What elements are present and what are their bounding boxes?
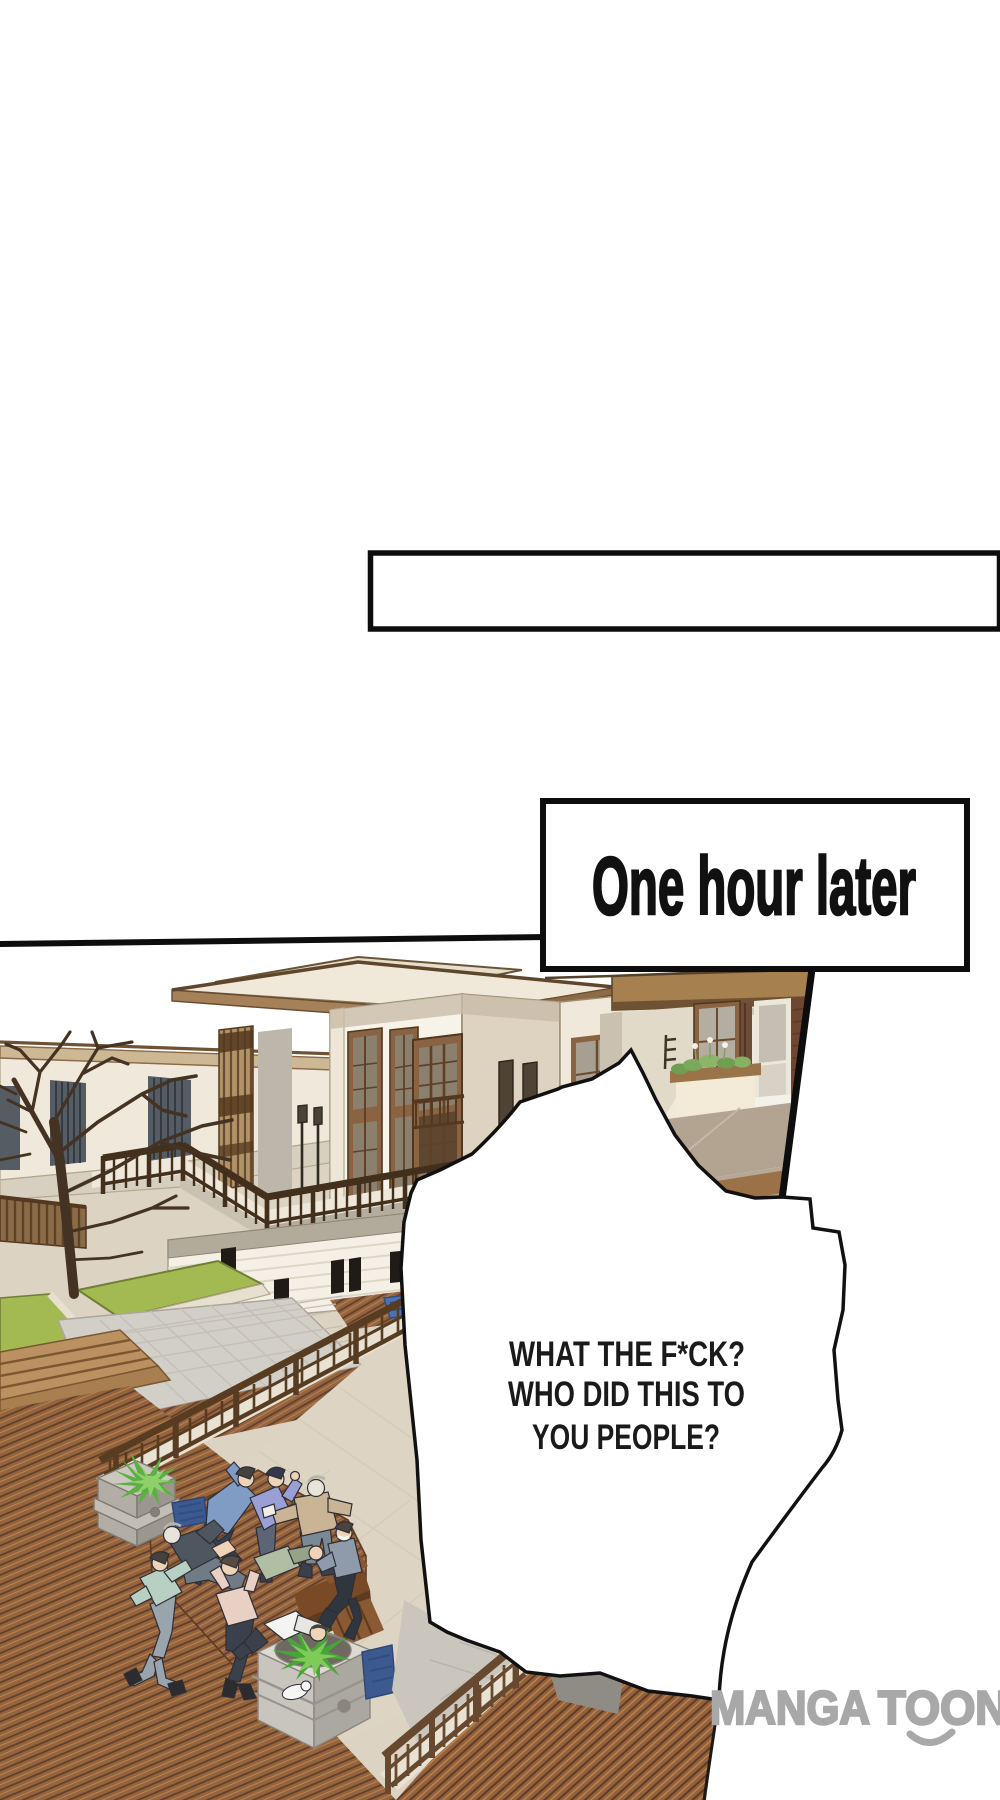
- svg-text:WHAT THE F*CK?: WHAT THE F*CK?: [509, 1335, 745, 1374]
- svg-text:MANGA: MANGA: [710, 1681, 870, 1734]
- svg-text:TOON: TOON: [878, 1681, 1000, 1734]
- svg-text:WHO DID THIS TO: WHO DID THIS TO: [508, 1375, 745, 1414]
- svg-text:One hour later: One hour later: [592, 841, 916, 932]
- svg-text:YOU PEOPLE?: YOU PEOPLE?: [532, 1418, 720, 1457]
